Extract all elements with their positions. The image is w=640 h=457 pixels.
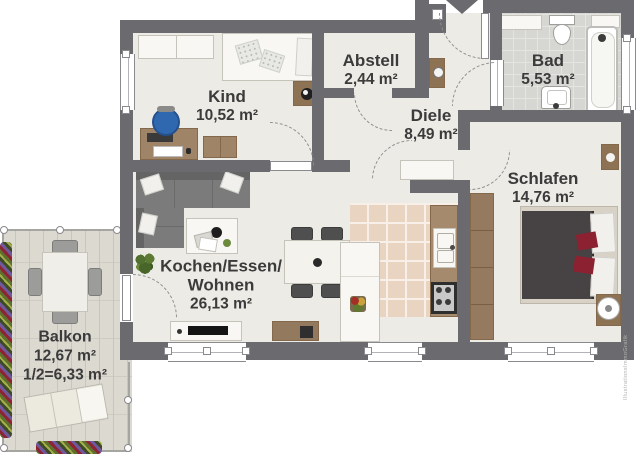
tub-inner (591, 32, 615, 108)
watermark: IllustrationsImmoGrafik (623, 282, 633, 400)
wall-kitchen-right (458, 122, 470, 150)
door-swing-arc (270, 122, 314, 166)
balcony-table (42, 252, 88, 312)
deco-pillow (259, 49, 285, 73)
wardrobe-divider (176, 36, 177, 58)
sofa-seam (212, 180, 213, 208)
wall-bad-left (490, 13, 502, 60)
bath-sink (541, 86, 571, 109)
room-label-diele: Diele 8,49 m² (404, 106, 457, 144)
keyboard (153, 146, 183, 157)
window-post (504, 347, 512, 355)
wall-bottom (246, 342, 368, 360)
mouse (186, 148, 191, 154)
island-divider (341, 276, 379, 277)
window-post (590, 347, 598, 355)
room-name: Balkon (23, 328, 107, 347)
wardrobe-line (471, 304, 493, 305)
accent-pillow (573, 256, 595, 275)
room-area: 10,52 m² (196, 106, 258, 125)
table-knot (313, 258, 322, 267)
railing-post (124, 444, 132, 452)
door-swing-arc (470, 150, 510, 190)
plant-small (223, 239, 231, 247)
room-name: Wohnen (160, 276, 282, 295)
window-post (203, 347, 211, 355)
mirror-icon (433, 67, 444, 78)
coffee-table (186, 218, 238, 254)
tub-faucet-icon (598, 34, 606, 42)
speaker (177, 329, 182, 334)
room-area-half: 1/2=6,33 m² (23, 366, 107, 385)
wall-shelf (601, 144, 619, 170)
double-bed (520, 206, 618, 304)
burner (436, 299, 442, 305)
window-post (623, 34, 631, 42)
room-name: Kind (196, 87, 258, 106)
magazine (198, 237, 218, 253)
room-label-schlafen: Schlafen 14,76 m² (508, 169, 579, 207)
floor-plan: Kind 10,52 m² Abstell 2,44 m² Diele 8,49… (0, 0, 640, 457)
window-post (418, 347, 426, 355)
bath-shelf (500, 15, 542, 30)
wall-bottom (422, 342, 508, 360)
sink-basin (437, 250, 454, 263)
wardrobe-line (471, 230, 493, 231)
deco-pillow (235, 39, 264, 65)
kind-dresser (203, 136, 237, 158)
room-label-balkon: Balkon 12,67 m² 1/2=6,33 m² (23, 328, 107, 385)
fruit-bowl (350, 296, 366, 312)
flower-box (36, 441, 102, 454)
deco-box (300, 326, 313, 338)
balcony-chair (52, 310, 78, 324)
burner (445, 287, 451, 293)
room-name: Diele (404, 106, 457, 125)
window-post (122, 50, 130, 58)
kind-bed (222, 33, 318, 81)
lamp-icon (597, 297, 620, 320)
railing-post (124, 396, 132, 404)
kitchen-island (340, 242, 380, 342)
room-label-wohnen: Kochen/Essen/ Wohnen 26,13 m² (160, 257, 282, 314)
room-area: 2,44 m² (343, 70, 400, 89)
window-post (164, 347, 172, 355)
lounger-section-line (50, 393, 57, 427)
room-label-abstell: Abstell 2,44 m² (343, 51, 400, 89)
room-name: Schlafen (508, 169, 579, 188)
lounger-headrest (77, 385, 107, 421)
chair-back (157, 106, 175, 112)
railing-post (0, 444, 8, 452)
room-name: Bad (521, 51, 574, 70)
schlafen-wardrobe (470, 193, 494, 340)
dining-chair (291, 227, 313, 241)
room-label-kind: Kind 10,52 m² (196, 87, 258, 125)
window-post (122, 106, 130, 114)
flower-box (0, 242, 12, 438)
room-name: Abstell (343, 51, 400, 70)
room-area: 26,13 m² (160, 295, 282, 314)
tv-lowboard (170, 321, 242, 341)
wall-top-left (120, 20, 429, 33)
wall-kitchen-top (410, 180, 470, 193)
room-area: 14,76 m² (508, 188, 579, 207)
door-swing-arc (439, 13, 485, 59)
window-kind (120, 54, 135, 110)
window-post (364, 347, 372, 355)
window-post (623, 106, 631, 114)
balcony-door-leaf (122, 275, 131, 321)
kind-wardrobe (138, 35, 214, 59)
balcony-chair (28, 268, 42, 296)
window-post (242, 347, 250, 355)
dining-chair (321, 227, 343, 241)
sideboard (272, 321, 319, 341)
window-kitchen (368, 342, 422, 362)
entrance-arrow-icon (446, 0, 478, 14)
bed-blanket (522, 211, 594, 299)
wall-abstell-right (415, 0, 429, 98)
room-label-bad: Bad 5,53 m² (521, 51, 574, 89)
lamp-center (605, 305, 612, 312)
lamp-highlight (303, 90, 308, 95)
wall-kind-bottom (133, 160, 270, 172)
balcony-chair (88, 268, 102, 296)
kitchen-sink (433, 228, 456, 268)
dining-chair (291, 284, 313, 298)
tv (188, 326, 228, 335)
door-swing-arc (372, 140, 412, 180)
wall-stub (324, 160, 350, 172)
bathtub (586, 26, 618, 114)
wall-kitchen-right (458, 190, 470, 342)
wall-abstell-bottom (324, 88, 354, 98)
burner (436, 287, 442, 293)
wardrobe-line (471, 267, 493, 268)
hall-cabinet (429, 58, 445, 88)
railing-post (0, 226, 8, 234)
window-bad (621, 38, 636, 110)
desk-chair (152, 108, 180, 136)
accent-pillow (576, 231, 598, 250)
wall-bad-bottom (458, 110, 634, 122)
balcony-railing (128, 362, 130, 450)
faucet-icon (553, 103, 559, 109)
stove (431, 282, 457, 314)
deco-dot (606, 153, 615, 162)
room-area: 5,53 m² (521, 70, 574, 89)
sofa-seam (174, 180, 175, 208)
door-swing-arc (354, 93, 392, 131)
railing-post (56, 226, 64, 234)
faucet-icon (450, 245, 455, 250)
room-name: Kochen/Essen/ (160, 257, 282, 276)
wall-bottom (120, 342, 168, 360)
dresser-divider (220, 137, 221, 157)
door-swing-arc (452, 62, 496, 106)
plant-icon (134, 252, 156, 274)
room-area: 12,67 m² (23, 347, 107, 366)
burner (445, 299, 451, 305)
wall-top-right (483, 0, 634, 13)
window-post (547, 347, 555, 355)
room-area: 8,49 m² (404, 125, 457, 144)
